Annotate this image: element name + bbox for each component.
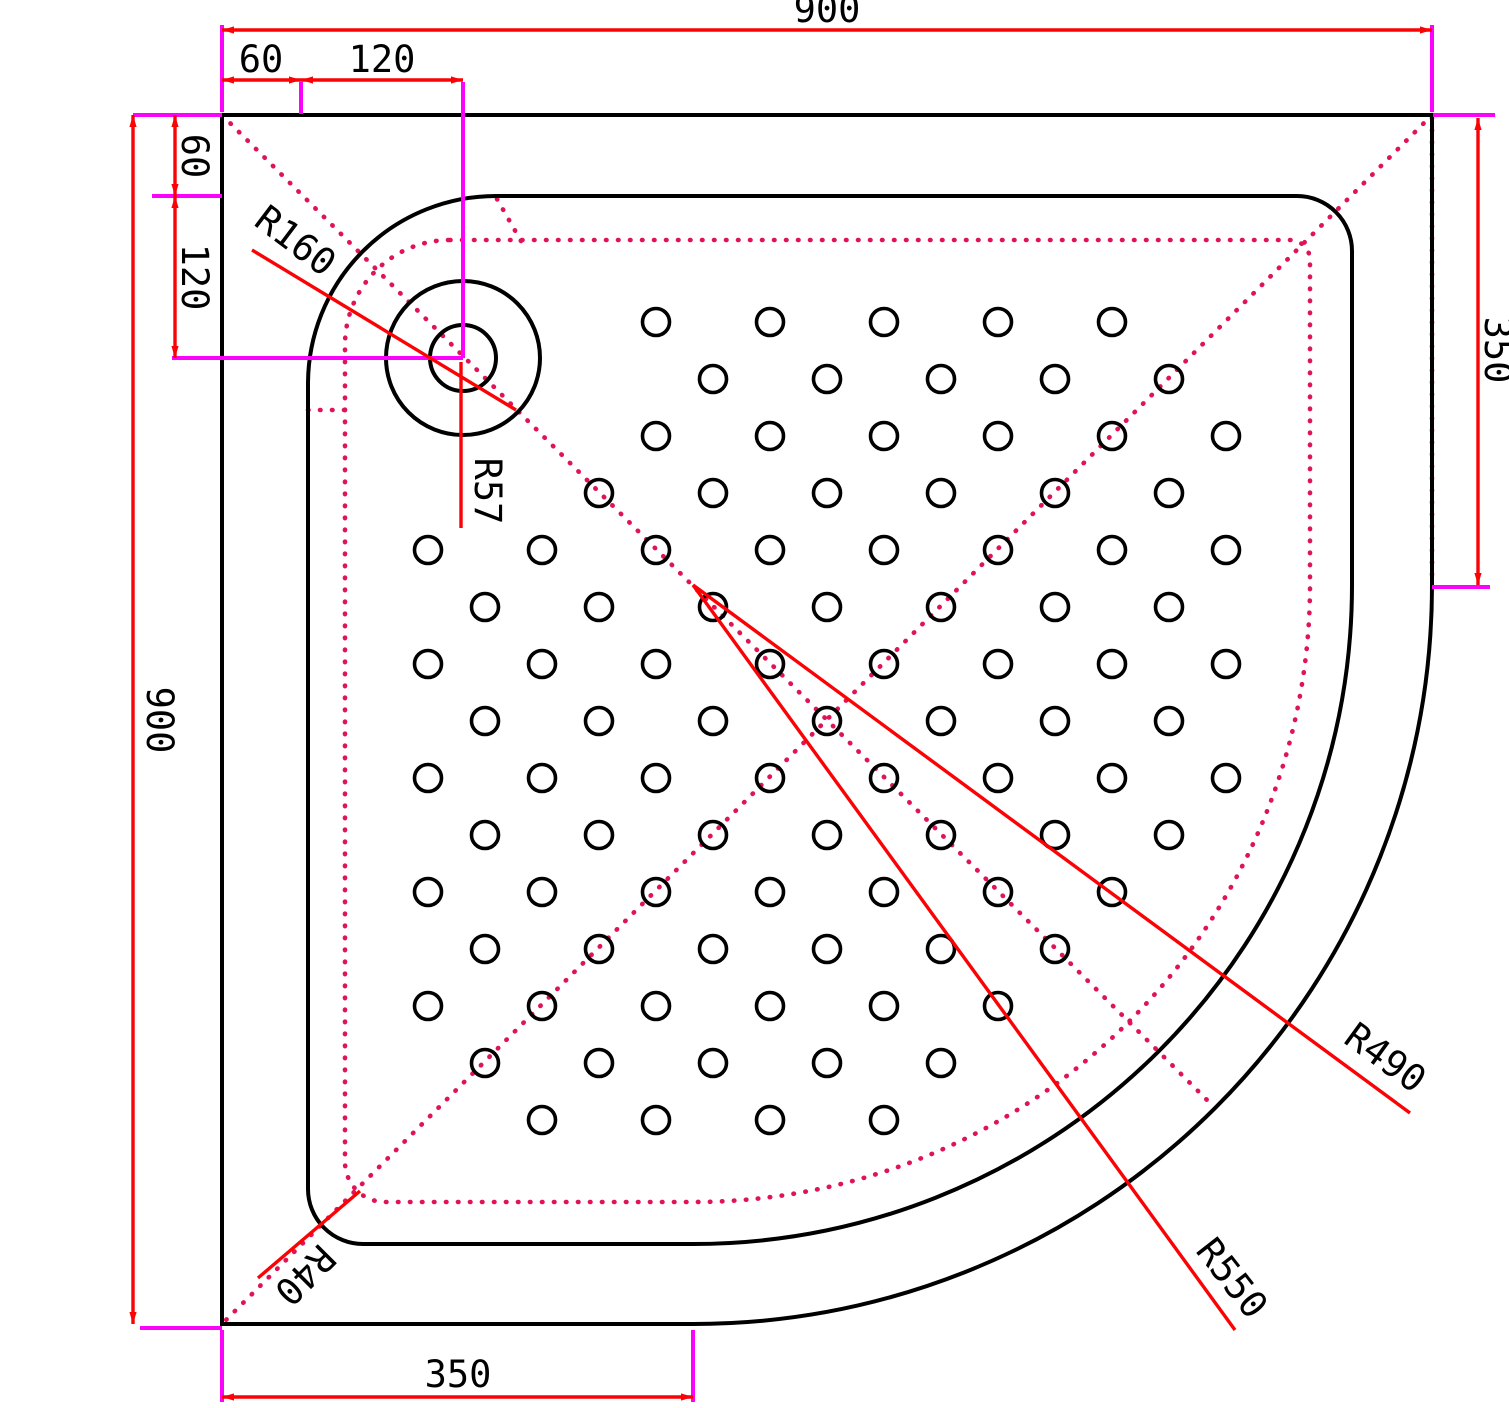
anti-slip-dot bbox=[643, 765, 670, 792]
anti-slip-dot bbox=[700, 366, 727, 393]
anti-slip-dot bbox=[757, 1107, 784, 1134]
anti-slip-dot bbox=[871, 309, 898, 336]
anti-slip-dot bbox=[1042, 480, 1069, 507]
anti-slip-dot bbox=[643, 651, 670, 678]
anti-slip-dot bbox=[472, 822, 499, 849]
anti-slip-dot bbox=[1099, 651, 1126, 678]
anti-slip-dot bbox=[586, 480, 613, 507]
anti-slip-dot bbox=[529, 879, 556, 906]
anti-slip-dot bbox=[586, 822, 613, 849]
anti-slip-dot bbox=[928, 480, 955, 507]
anti-slip-dot bbox=[1099, 309, 1126, 336]
anti-slip-dot bbox=[985, 309, 1012, 336]
anti-slip-dot bbox=[757, 423, 784, 450]
anti-slip-dot-pattern bbox=[415, 309, 1240, 1134]
anti-slip-dot bbox=[1213, 651, 1240, 678]
anti-slip-dot bbox=[757, 309, 784, 336]
anti-slip-dot bbox=[1156, 480, 1183, 507]
anti-slip-dot bbox=[586, 708, 613, 735]
anti-slip-dot bbox=[814, 480, 841, 507]
anti-slip-dot bbox=[928, 708, 955, 735]
anti-slip-dot bbox=[415, 993, 442, 1020]
label-r160: R160 bbox=[247, 197, 344, 285]
anti-slip-dot bbox=[529, 537, 556, 564]
anti-slip-dot bbox=[757, 879, 784, 906]
radius-labels: R160 R57 R490 R550 R40 bbox=[247, 197, 1434, 1327]
anti-slip-dot bbox=[1099, 423, 1126, 450]
anti-slip-dot bbox=[586, 936, 613, 963]
anti-slip-dot bbox=[1042, 708, 1069, 735]
label-r40: R40 bbox=[266, 1236, 344, 1314]
anti-slip-dot bbox=[871, 537, 898, 564]
label-bottom-350: 350 bbox=[425, 1353, 492, 1396]
anti-slip-dot bbox=[700, 936, 727, 963]
anti-slip-dot bbox=[1156, 594, 1183, 621]
label-top-120: 120 bbox=[349, 38, 416, 81]
anti-slip-dot bbox=[985, 879, 1012, 906]
anti-slip-dot bbox=[757, 993, 784, 1020]
anti-slip-dot bbox=[700, 1050, 727, 1077]
dotted-stub-top bbox=[497, 199, 521, 241]
label-left-60: 60 bbox=[173, 134, 216, 179]
anti-slip-dot bbox=[415, 879, 442, 906]
anti-slip-dot bbox=[814, 1050, 841, 1077]
anti-slip-dot bbox=[586, 594, 613, 621]
anti-slip-dot bbox=[814, 708, 841, 735]
label-r57: R57 bbox=[466, 458, 509, 525]
anti-slip-dot bbox=[1213, 423, 1240, 450]
anti-slip-dot bbox=[586, 1050, 613, 1077]
anti-slip-dot bbox=[871, 993, 898, 1020]
anti-slip-dot bbox=[529, 765, 556, 792]
anti-slip-dot bbox=[757, 651, 784, 678]
anti-slip-dot bbox=[529, 1107, 556, 1134]
leader-r490 bbox=[693, 585, 1410, 1113]
anti-slip-dot bbox=[757, 537, 784, 564]
anti-slip-dot bbox=[985, 651, 1012, 678]
anti-slip-dot bbox=[871, 879, 898, 906]
label-left-900: 900 bbox=[138, 687, 181, 754]
leader-r550 bbox=[693, 585, 1235, 1330]
anti-slip-dot bbox=[472, 936, 499, 963]
anti-slip-dot bbox=[1042, 366, 1069, 393]
anti-slip-dot bbox=[700, 708, 727, 735]
label-r490: R490 bbox=[1337, 1014, 1434, 1101]
anti-slip-dot bbox=[700, 480, 727, 507]
dotted-construction-lines bbox=[222, 115, 1432, 1324]
anti-slip-dot bbox=[415, 537, 442, 564]
anti-slip-dot bbox=[529, 651, 556, 678]
label-right-350: 350 bbox=[1476, 317, 1509, 384]
anti-slip-dot bbox=[928, 1050, 955, 1077]
anti-slip-dot bbox=[928, 366, 955, 393]
anti-slip-dot bbox=[814, 366, 841, 393]
label-top-900: 900 bbox=[794, 0, 861, 31]
anti-slip-dot bbox=[928, 822, 955, 849]
anti-slip-dot bbox=[985, 423, 1012, 450]
anti-slip-dot bbox=[415, 765, 442, 792]
anti-slip-dot bbox=[643, 423, 670, 450]
anti-slip-dot bbox=[643, 309, 670, 336]
anti-slip-dot bbox=[1213, 765, 1240, 792]
anti-slip-dot bbox=[814, 936, 841, 963]
anti-slip-dot bbox=[871, 423, 898, 450]
anti-slip-dot bbox=[415, 651, 442, 678]
technical-drawing: 900 60 120 900 60 120 350 350 R160 R57 R… bbox=[0, 0, 1509, 1408]
label-left-120: 120 bbox=[173, 244, 216, 311]
anti-slip-dot bbox=[871, 1107, 898, 1134]
drawing-canvas: 900 60 120 900 60 120 350 350 R160 R57 R… bbox=[0, 0, 1509, 1408]
anti-slip-dot bbox=[643, 993, 670, 1020]
anti-slip-dot bbox=[643, 879, 670, 906]
anti-slip-dot bbox=[871, 651, 898, 678]
anti-slip-dot bbox=[1156, 708, 1183, 735]
anti-slip-dot bbox=[1042, 936, 1069, 963]
anti-slip-dot bbox=[985, 765, 1012, 792]
label-r550: R550 bbox=[1187, 1230, 1276, 1327]
anti-slip-dot bbox=[814, 594, 841, 621]
anti-slip-dot bbox=[1099, 765, 1126, 792]
anti-slip-dot bbox=[1042, 594, 1069, 621]
anti-slip-dot bbox=[1099, 537, 1126, 564]
anti-slip-dot bbox=[1156, 822, 1183, 849]
label-top-60: 60 bbox=[239, 38, 284, 81]
anti-slip-dot bbox=[814, 822, 841, 849]
anti-slip-dot bbox=[472, 594, 499, 621]
anti-slip-dot bbox=[472, 1050, 499, 1077]
anti-slip-dot bbox=[700, 822, 727, 849]
anti-slip-dot bbox=[643, 1107, 670, 1134]
anti-slip-dot bbox=[472, 708, 499, 735]
anti-slip-dot bbox=[1213, 537, 1240, 564]
dotted-diagonal-from-top-right bbox=[222, 115, 1432, 1324]
